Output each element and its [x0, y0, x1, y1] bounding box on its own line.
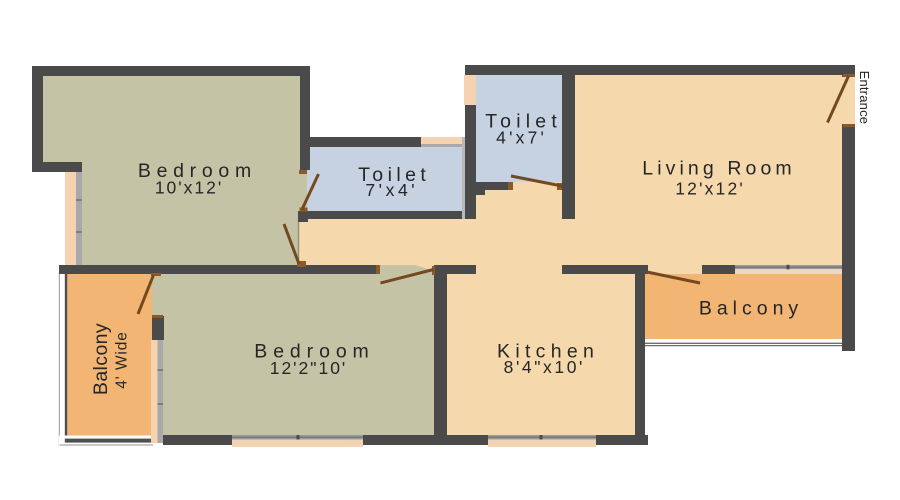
- svg-text:4'x7': 4'x7': [496, 128, 547, 148]
- svg-text:10'x12': 10'x12': [155, 178, 223, 198]
- svg-text:8'4"x10': 8'4"x10': [504, 357, 585, 377]
- svg-text:12'x12': 12'x12': [675, 179, 745, 199]
- svg-text:Living Room: Living Room: [642, 158, 795, 180]
- svg-text:Balcony: Balcony: [90, 323, 112, 395]
- svg-text:Balcony: Balcony: [699, 298, 803, 320]
- svg-text:4' Wide: 4' Wide: [114, 331, 131, 389]
- svg-text:7'x4': 7'x4': [365, 180, 418, 200]
- svg-text:Entrance: Entrance: [857, 71, 872, 125]
- svg-text:12'2"10': 12'2"10': [270, 358, 348, 378]
